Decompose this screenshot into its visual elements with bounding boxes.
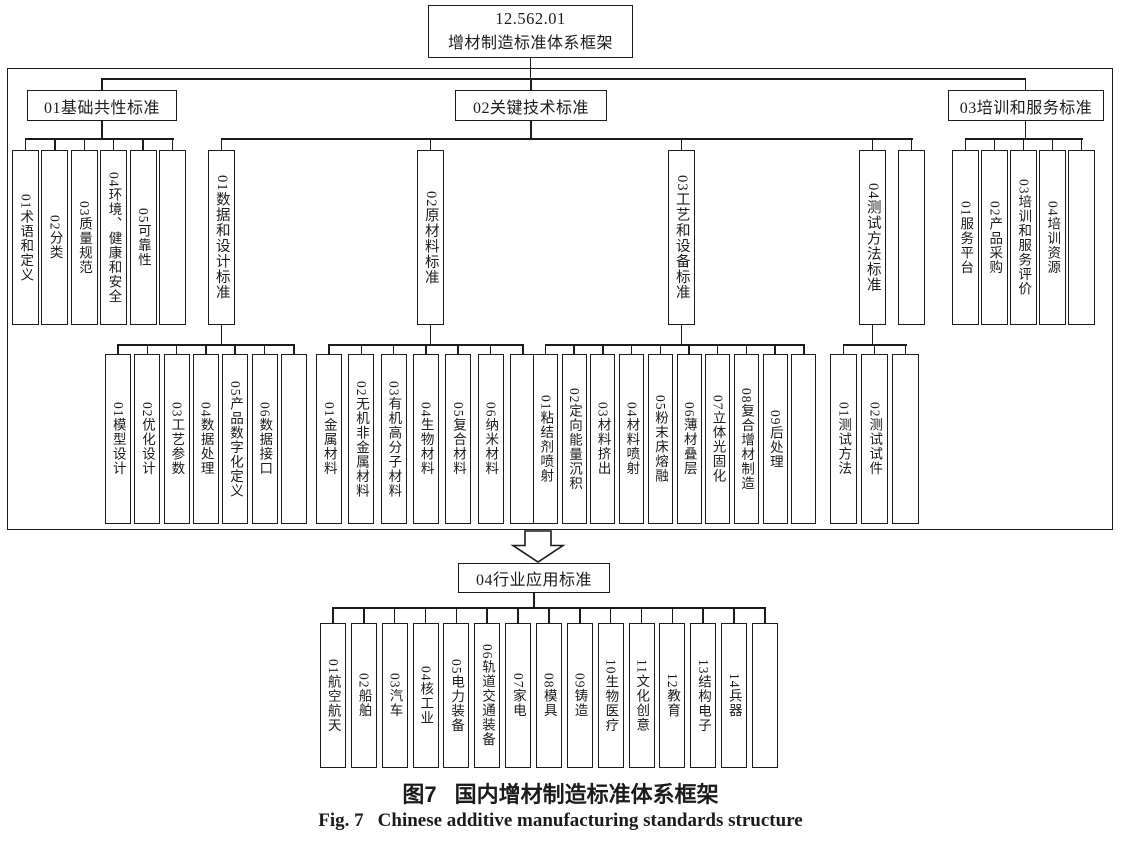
figure-caption-en-number: Fig. 7: [318, 810, 363, 831]
node-label: 14兵器: [727, 673, 741, 718]
leaf-node: 01模型设计: [105, 354, 131, 524]
node-label: 06薄材叠层: [682, 402, 696, 476]
node-label: 04材料喷射: [625, 402, 639, 476]
figure-caption-zh-text: 国内增材制造标准体系框架: [455, 782, 719, 807]
leaf-node: 03材料挤出: [590, 354, 615, 524]
connector-line: [872, 324, 874, 345]
category-node: 03工艺和设备标准: [668, 150, 695, 325]
node-label: 13结构电子: [696, 659, 710, 733]
node-label: 03材料挤出: [596, 402, 610, 476]
leaf-node: [281, 354, 307, 524]
node-label: 02原材料标准: [423, 191, 438, 285]
node-label: 05产品数字化定义: [228, 381, 242, 498]
node-label: 03有机高分子材料: [387, 381, 401, 498]
connector-line: [530, 120, 532, 139]
leaf-node: 02船舶: [351, 623, 377, 768]
leaf-node: [892, 354, 919, 524]
node-label: 04生物材料: [419, 402, 433, 476]
leaf-node: 04培训资源: [1039, 150, 1066, 325]
figure-caption-en-text: Chinese additive manufacturing standards…: [378, 810, 803, 831]
leaf-node: 04材料喷射: [619, 354, 644, 524]
node-label: 05可靠性: [136, 208, 150, 267]
down-arrow-icon: [499, 530, 577, 564]
connector-stub: [733, 607, 735, 624]
leaf-node: 07立体光固化: [705, 354, 730, 524]
node-label: 02优化设计: [141, 402, 155, 476]
leaf-node: 03培训和服务评价: [1010, 150, 1037, 325]
connector-line: [1025, 120, 1027, 139]
leaf-node: 08复合增材制造: [734, 354, 759, 524]
branch-keytech-label: 02关键技术标准: [473, 94, 589, 118]
leaf-node: [791, 354, 816, 524]
node-label: 04环境、健康和安全: [107, 172, 121, 304]
connector-line: [530, 57, 532, 79]
leaf-node: 12教育: [659, 623, 685, 768]
node-label: 06纳米材料: [484, 402, 498, 476]
leaf-node: 05可靠性: [130, 150, 157, 325]
leaf-node: 09后处理: [763, 354, 788, 524]
node-label: 02船舶: [357, 673, 371, 718]
node-label: 01术语和定义: [19, 194, 33, 282]
node-label: 05电力装备: [450, 659, 464, 733]
node-label: 07立体光固化: [711, 395, 725, 483]
leaf-node: [510, 354, 536, 524]
leaf-node: 02分类: [41, 150, 68, 325]
connector-stub: [764, 607, 766, 624]
leaf-node: 05产品数字化定义: [222, 354, 248, 524]
node-label: 07家电: [511, 673, 525, 718]
node-label: 02无机非金属材料: [355, 381, 369, 498]
leaf-node: [752, 623, 778, 768]
figure-canvas: 12.562.01 增材制造标准体系框架 01基础共性标准 02关键技术标准 0…: [0, 0, 1121, 843]
connector-line: [221, 138, 913, 140]
leaf-node: 07家电: [505, 623, 531, 768]
leaf-node: 01服务平台: [952, 150, 979, 325]
root-title: 增材制造标准体系框架: [448, 32, 613, 57]
connector-line: [25, 138, 174, 140]
connector-stub: [702, 607, 704, 624]
leaf-node: 01术语和定义: [12, 150, 39, 325]
connector-line: [430, 324, 432, 345]
category-node: 04测试方法标准: [859, 150, 886, 325]
node-label: 01数据和设计标准: [214, 175, 229, 300]
branch-training-label: 03培训和服务标准: [960, 94, 1093, 118]
connector-line: [681, 324, 683, 345]
leaf-node: 02无机非金属材料: [348, 354, 374, 524]
node-label: 12教育: [666, 673, 680, 718]
connector-line: [101, 78, 1026, 80]
leaf-node: 10生物医疗: [598, 623, 624, 768]
leaf-node: 04环境、健康和安全: [100, 150, 127, 325]
node-label: 02定向能量沉积: [567, 388, 581, 491]
node-label: 02产品采购: [988, 201, 1002, 275]
node-label: 04数据处理: [199, 402, 213, 476]
leaf-node: 02产品采购: [981, 150, 1008, 325]
connector-stub: [456, 607, 458, 624]
branch-basic-node: 01基础共性标准: [27, 90, 177, 121]
node-label: 01航空航天: [326, 659, 340, 733]
node-label: 09铸造: [573, 673, 587, 718]
leaf-node: 03有机高分子材料: [381, 354, 407, 524]
leaf-node: 14兵器: [721, 623, 747, 768]
category-node: [898, 150, 925, 325]
node-label: 01粘结剂喷射: [539, 395, 553, 483]
node-label: 06数据接口: [258, 402, 272, 476]
node-label: 03汽车: [388, 673, 402, 718]
leaf-node: 04核工业: [413, 623, 439, 768]
leaf-node: 04生物材料: [413, 354, 439, 524]
branch-industry-label: 04行业应用标准: [476, 566, 592, 590]
node-label: 05复合材料: [451, 402, 465, 476]
branch-basic-label: 01基础共性标准: [44, 94, 160, 118]
leaf-node: 01金属材料: [316, 354, 342, 524]
leaf-node: 02优化设计: [134, 354, 160, 524]
figure-caption-zh-number: 图7: [402, 782, 436, 807]
connector-stub: [579, 607, 581, 624]
leaf-node: [159, 150, 186, 325]
connector-stub: [332, 607, 334, 624]
node-label: 04测试方法标准: [865, 183, 880, 293]
branch-training-node: 03培训和服务标准: [948, 90, 1104, 121]
node-label: 09后处理: [768, 410, 782, 469]
node-label: 03工艺和设备标准: [674, 175, 689, 300]
branch-keytech-node: 02关键技术标准: [455, 90, 607, 121]
leaf-node: 06轨道交通装备: [474, 623, 500, 768]
connector-stub: [517, 607, 519, 624]
node-label: 04培训资源: [1046, 201, 1060, 275]
leaf-node: 01粘结剂喷射: [533, 354, 558, 524]
node-label: 03培训和服务评价: [1017, 179, 1031, 296]
leaf-node: 06数据接口: [252, 354, 278, 524]
node-label: 08模具: [542, 673, 556, 718]
connector-stub: [548, 607, 550, 624]
leaf-node: 05粉末床熔融: [648, 354, 673, 524]
leaf-node: 02测试试件: [861, 354, 888, 524]
connector-stub: [425, 607, 427, 624]
node-label: 06轨道交通装备: [481, 644, 495, 747]
node-label: 01测试方法: [837, 402, 851, 476]
node-label: 03工艺参数: [170, 402, 184, 476]
category-node: 02原材料标准: [417, 150, 444, 325]
branch-industry-node: 04行业应用标准: [458, 563, 610, 593]
node-label: 01模型设计: [111, 402, 125, 476]
connector-line: [546, 344, 805, 346]
node-label: 02分类: [48, 215, 62, 260]
root-code: 12.562.01: [495, 6, 566, 32]
leaf-node: 01测试方法: [830, 354, 857, 524]
connector-stub: [363, 607, 365, 624]
connector-stub: [641, 607, 643, 624]
leaf-node: 04数据处理: [193, 354, 219, 524]
leaf-node: 05电力装备: [443, 623, 469, 768]
connector-line: [221, 324, 223, 345]
leaf-node: 02定向能量沉积: [562, 354, 587, 524]
node-label: 01金属材料: [322, 402, 336, 476]
leaf-node: 05复合材料: [445, 354, 471, 524]
leaf-node: 01航空航天: [320, 623, 346, 768]
leaf-node: 03汽车: [382, 623, 408, 768]
leaf-node: [1068, 150, 1095, 325]
node-label: 01服务平台: [959, 201, 973, 275]
node-label: 10生物医疗: [604, 659, 618, 733]
leaf-node: 03工艺参数: [164, 354, 190, 524]
figure-caption-zh: 图7国内增材制造标准体系框架: [0, 777, 1121, 809]
connector-stub: [672, 607, 674, 624]
leaf-node: 06纳米材料: [478, 354, 504, 524]
connector-stub: [610, 607, 612, 624]
node-label: 05粉末床熔融: [654, 395, 668, 483]
node-label: 08复合增材制造: [740, 388, 754, 491]
node-label: 03质量规范: [78, 201, 92, 275]
leaf-node: 13结构电子: [690, 623, 716, 768]
root-node: 12.562.01 增材制造标准体系框架: [428, 5, 633, 58]
connector-stub: [394, 607, 396, 624]
category-node: 01数据和设计标准: [208, 150, 235, 325]
leaf-node: 03质量规范: [71, 150, 98, 325]
connector-line: [533, 592, 535, 608]
figure-caption-en: Fig. 7Chinese additive manufacturing sta…: [0, 810, 1121, 832]
node-label: 02测试试件: [868, 402, 882, 476]
leaf-node: 11文化创意: [629, 623, 655, 768]
leaf-node: 09铸造: [567, 623, 593, 768]
node-label: 11文化创意: [635, 659, 649, 732]
node-label: 04核工业: [419, 666, 433, 725]
leaf-node: 08模具: [536, 623, 562, 768]
connector-line: [101, 120, 103, 139]
leaf-node: 06薄材叠层: [677, 354, 702, 524]
connector-stub: [486, 607, 488, 624]
